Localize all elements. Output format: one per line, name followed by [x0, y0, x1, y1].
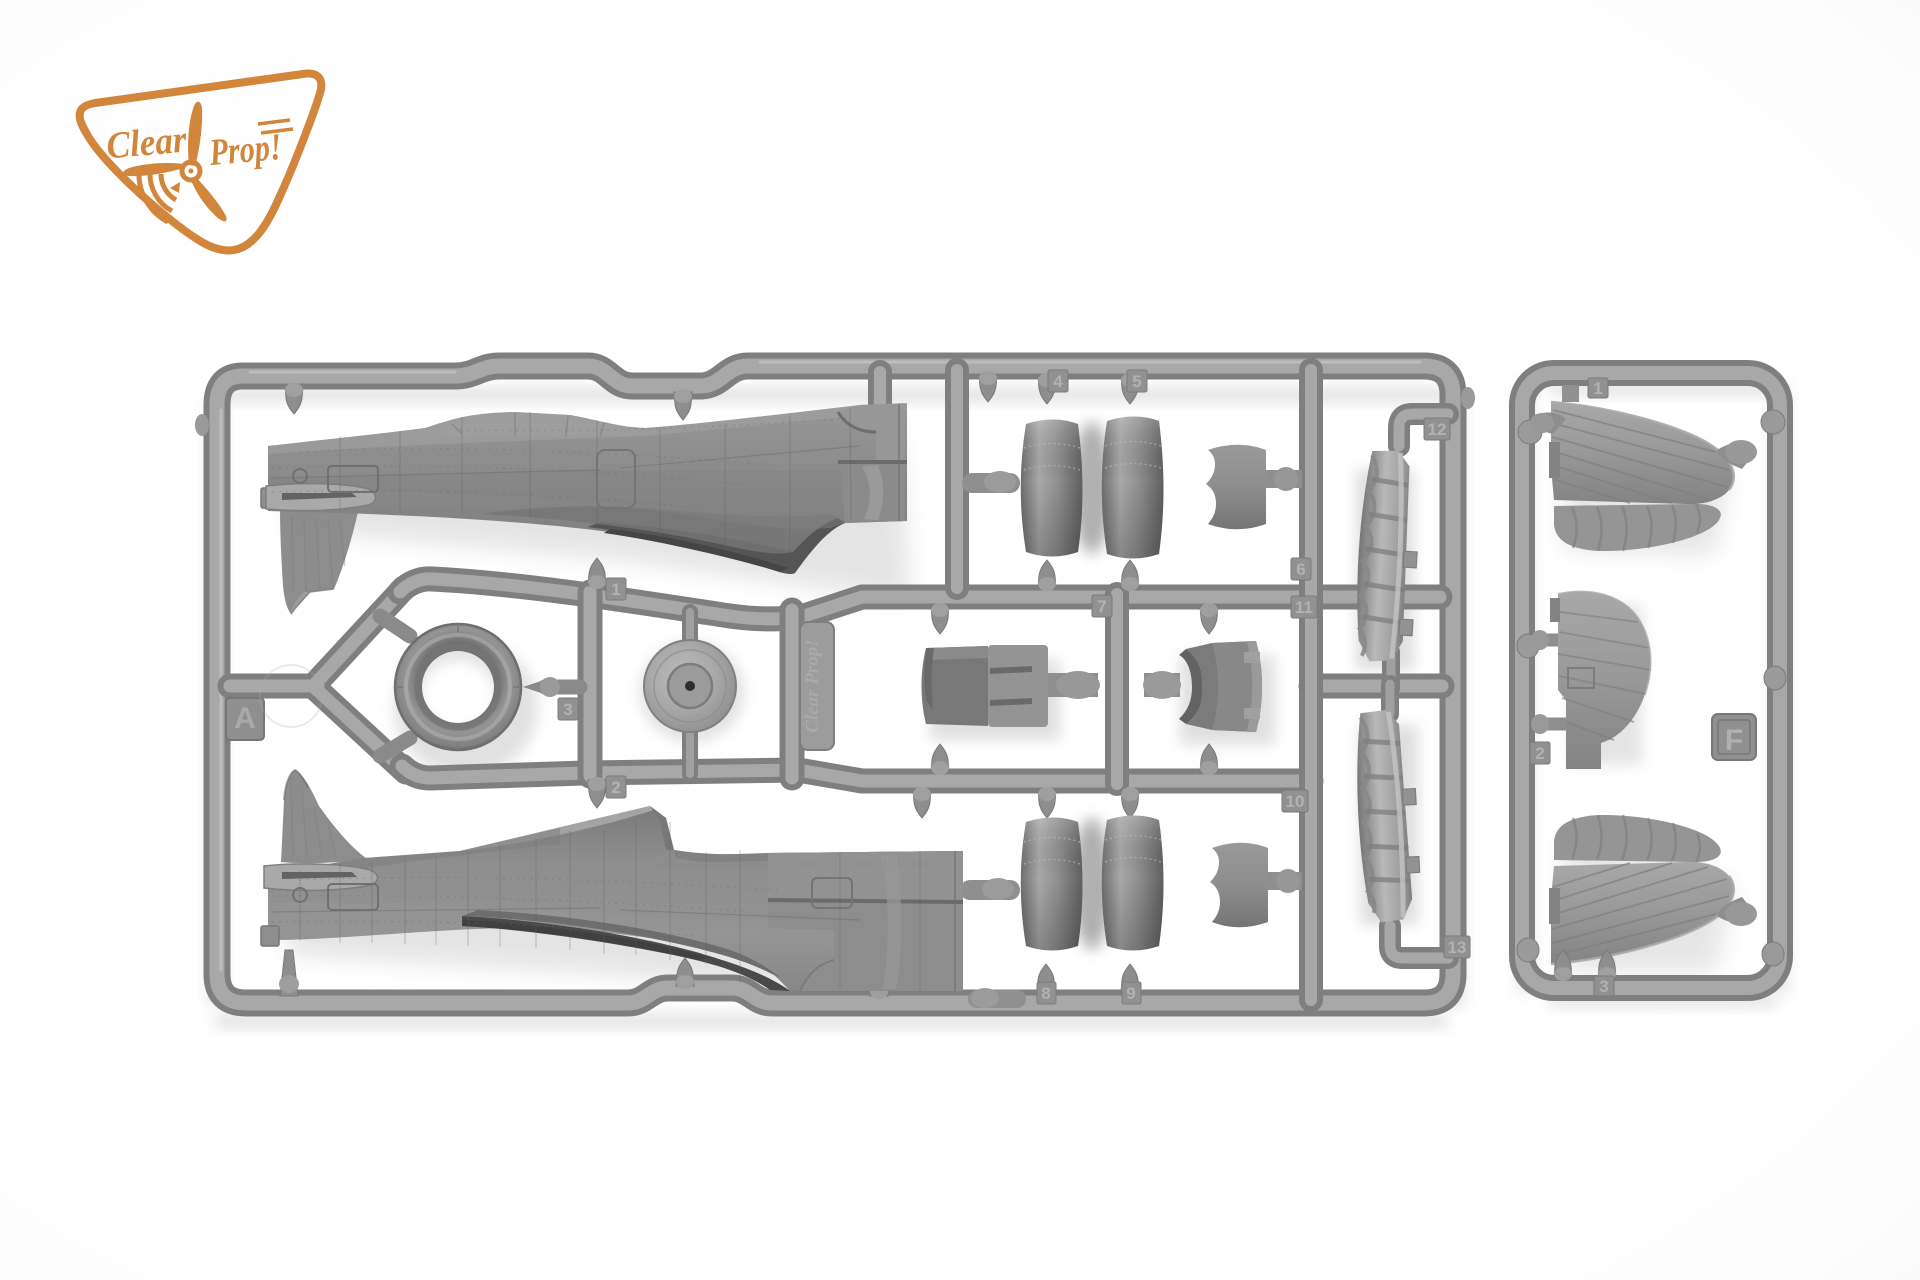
svg-text:11: 11 [1295, 598, 1313, 617]
svg-text:8: 8 [1041, 984, 1050, 1003]
svg-text:1: 1 [611, 580, 620, 599]
svg-text:A: A [234, 702, 256, 735]
svg-text:4: 4 [1053, 372, 1063, 391]
svg-text:7: 7 [1097, 597, 1106, 616]
svg-text:5: 5 [1132, 372, 1141, 391]
svg-text:12: 12 [1428, 420, 1447, 439]
svg-text:1: 1 [1593, 379, 1602, 398]
svg-text:13: 13 [1448, 938, 1467, 957]
svg-text:6: 6 [1296, 560, 1305, 579]
svg-text:Clear Prop!: Clear Prop! [802, 639, 823, 732]
svg-text:3: 3 [1599, 977, 1608, 996]
svg-text:10: 10 [1286, 792, 1305, 811]
svg-text:3: 3 [563, 700, 572, 719]
svg-text:9: 9 [1126, 984, 1135, 1003]
svg-text:2: 2 [1535, 744, 1544, 763]
svg-text:F: F [1725, 724, 1743, 757]
svg-text:Clear: Clear [105, 119, 189, 168]
svg-text:2: 2 [611, 778, 620, 797]
